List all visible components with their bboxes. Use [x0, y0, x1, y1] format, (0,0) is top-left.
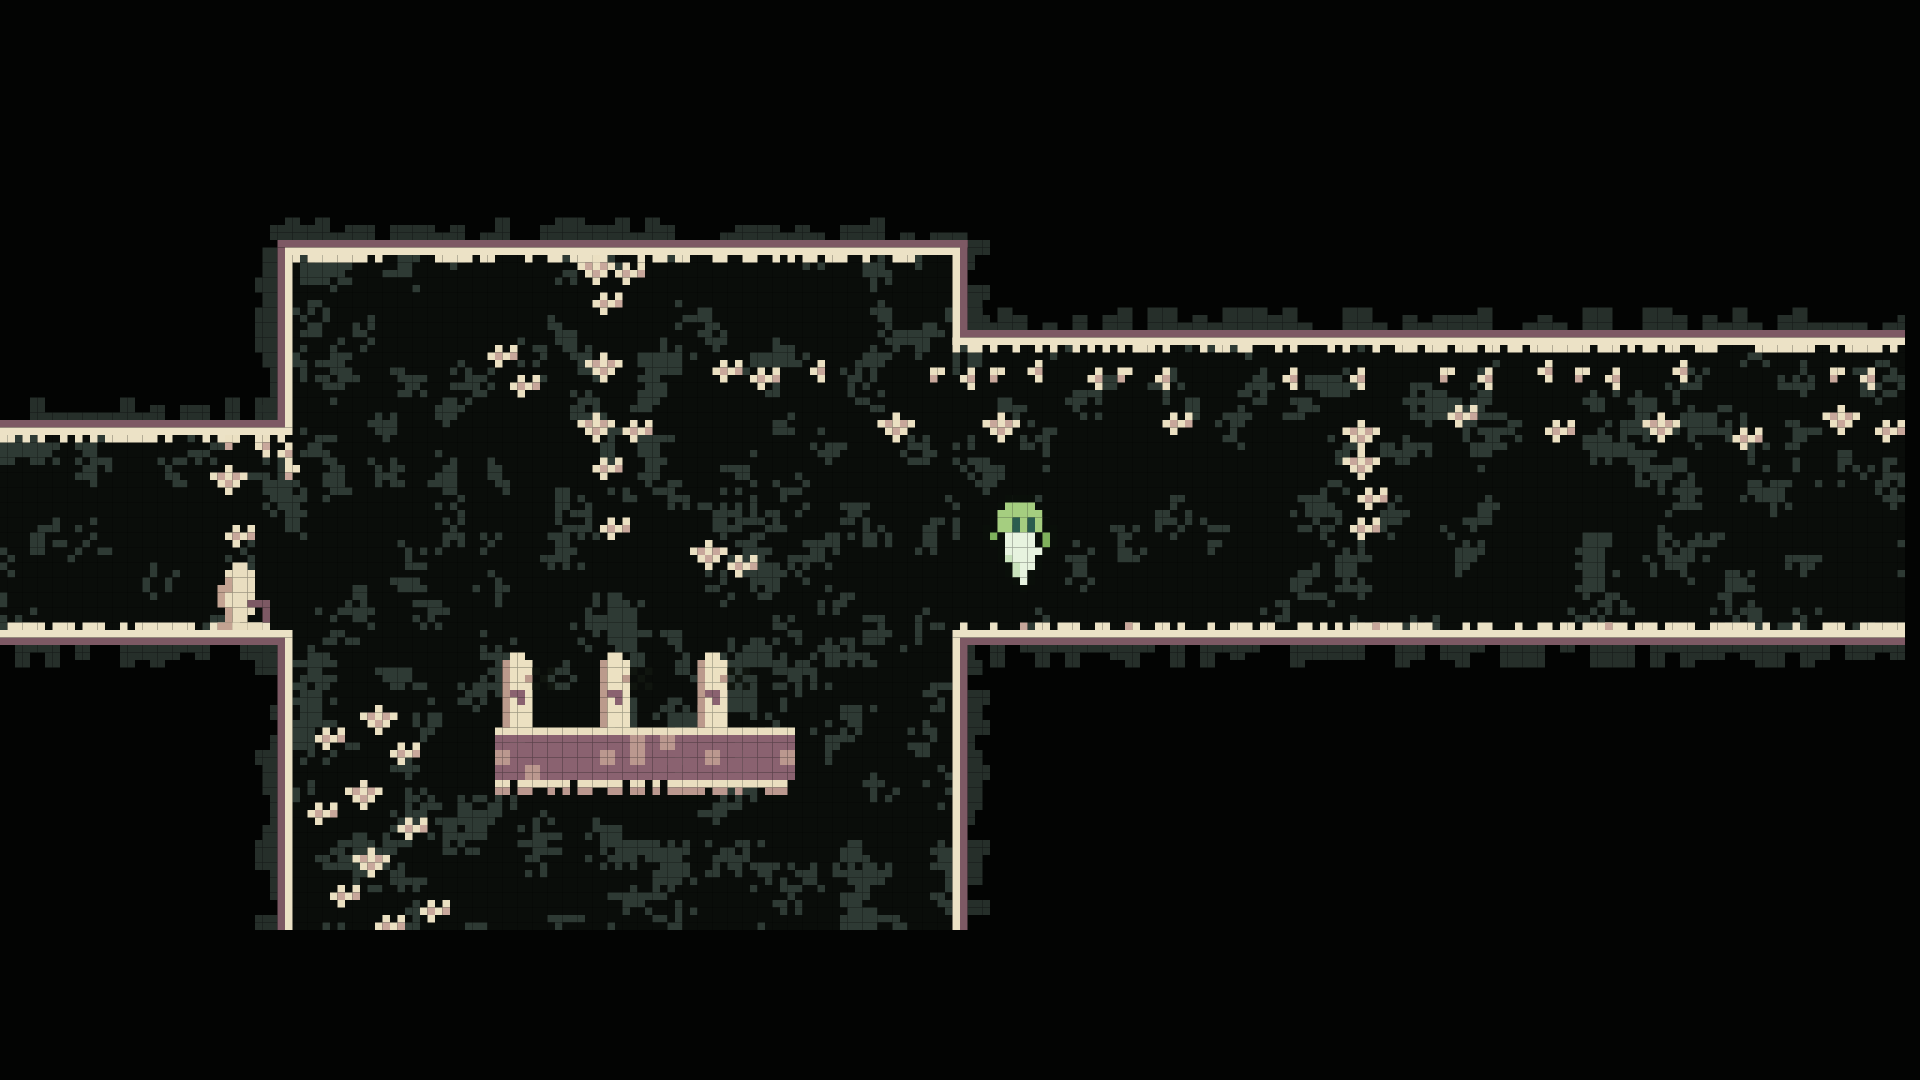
player-character	[983, 495, 1058, 593]
game-viewport[interactable]	[0, 0, 1920, 1080]
statue-sprite	[218, 563, 278, 631]
main-cave-room	[293, 255, 953, 930]
pillar-platform	[495, 653, 795, 796]
right-corridor	[953, 345, 1906, 630]
